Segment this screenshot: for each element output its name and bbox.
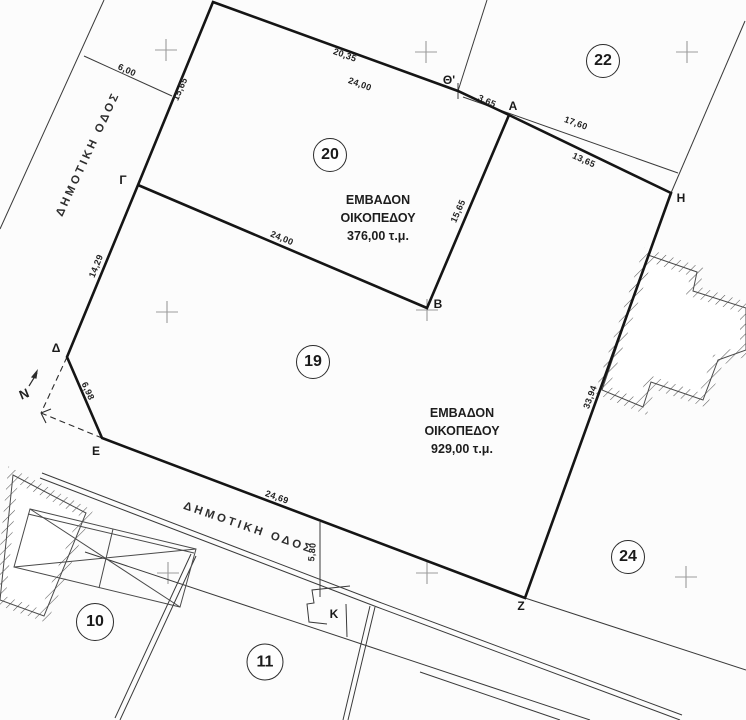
road-edge-east-of-z: [525, 598, 746, 670]
building-corner-k-wall: [346, 604, 347, 637]
area-label-plot20: ΕΜΒΑΔΟΝ ΟΙΚΟΠΕΔΟΥ 376,00 τ.μ.: [340, 191, 415, 245]
north-arrow-icon: [29, 371, 37, 386]
plot22-west-boundary: [458, 0, 487, 91]
vertex-kappa: Κ: [330, 607, 339, 621]
vertex-theta: Θ': [443, 73, 455, 87]
plot-number-11-label: 11: [257, 653, 274, 671]
building-corner-k-outline: [307, 586, 350, 624]
vertex-beta: Β: [434, 297, 443, 311]
plot-number-10-label: 10: [86, 613, 104, 631]
parcel-line-bottom-right: [420, 672, 560, 720]
plot-number-20: 20: [313, 138, 347, 172]
plot-number-19: 19: [296, 345, 330, 379]
building-east-hatched: [602, 255, 746, 407]
plot-number-19-label: 19: [304, 353, 322, 371]
vertex-eta: Η: [677, 191, 686, 205]
plot11-east-boundary: [343, 606, 375, 720]
plot-number-20-label: 20: [321, 146, 339, 164]
vertex-delta: Δ: [52, 341, 61, 355]
vertex-alpha: Α: [509, 99, 518, 113]
plot-number-10: 10: [76, 603, 114, 641]
plot10-11-boundary: [115, 554, 196, 720]
plot-number-11: 11: [247, 644, 284, 681]
area-label-plot19: ΕΜΒΑΔΟΝ ΟΙΚΟΠΕΔΟΥ 929,00 τ.μ.: [424, 404, 499, 458]
vertex-epsilon: Ε: [92, 444, 100, 458]
plot22-east-boundary: [671, 21, 745, 193]
plot-number-22-label: 22: [594, 52, 612, 70]
road-lower-far-edge: [85, 552, 590, 720]
building-southwest-hatched: [0, 475, 86, 616]
plot-number-24: 24: [611, 540, 645, 574]
road-lower-edge-a: [40, 478, 680, 720]
plot-number-22: 22: [586, 44, 620, 78]
vertex-gamma: Γ: [119, 173, 126, 187]
grid-cross-marks: [155, 39, 698, 588]
road-lower-edge-b: [42, 473, 682, 715]
plot-number-24-label: 24: [619, 548, 637, 566]
survey-map: 20 22 19 24 10 11 Θ' Α Γ Β Η Δ Ε Ζ Κ 20,…: [0, 0, 746, 720]
road-left-edge: [0, 0, 104, 229]
vertex-zeta: Ζ: [517, 599, 524, 613]
